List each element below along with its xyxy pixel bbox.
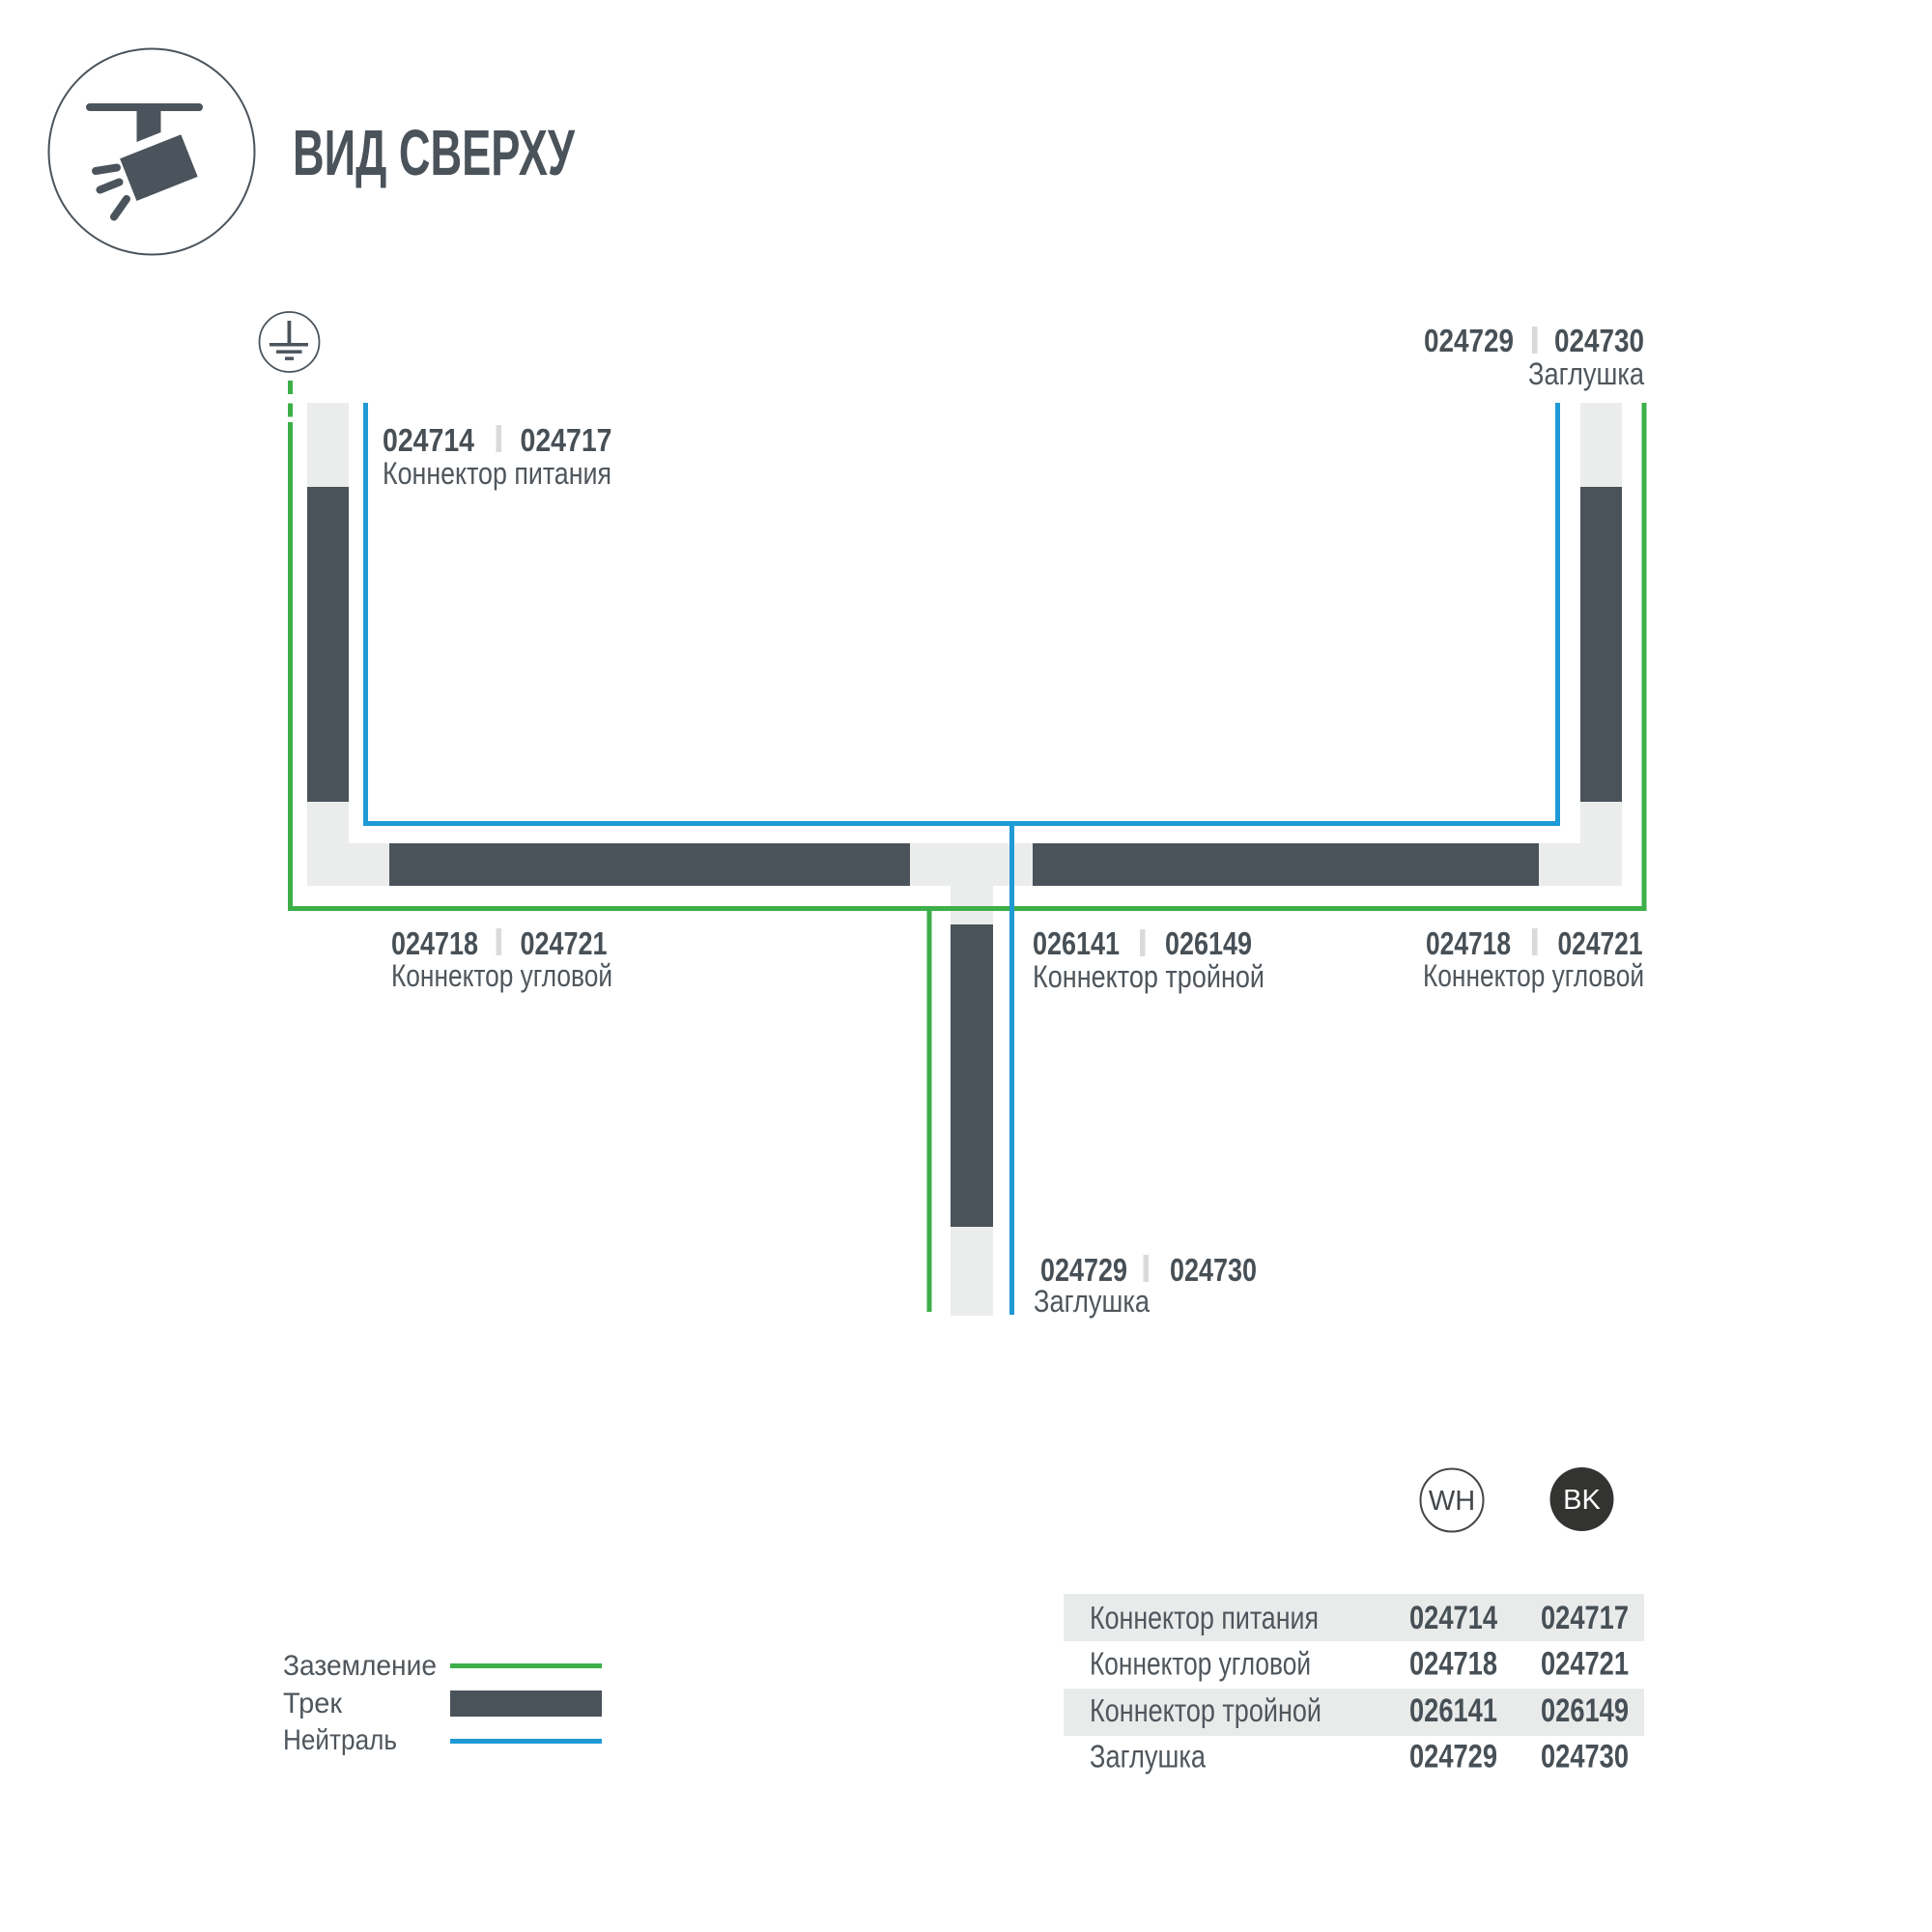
- svg-text:Заглушка: Заглушка: [1528, 356, 1644, 391]
- svg-text:Коннектор угловой: Коннектор угловой: [1090, 1646, 1311, 1682]
- svg-text:024730: 024730: [1541, 1739, 1629, 1776]
- svg-text:026141: 026141: [1033, 925, 1120, 961]
- svg-text:Коннектор тройной: Коннектор тройной: [1090, 1692, 1321, 1728]
- svg-text:BK: BK: [1563, 1485, 1601, 1516]
- svg-text:026149: 026149: [1165, 925, 1252, 961]
- svg-text:024729: 024729: [1424, 323, 1514, 358]
- svg-text:Коннектор угловой: Коннектор угловой: [391, 958, 612, 993]
- svg-text:Коннектор тройной: Коннектор тройной: [1033, 959, 1264, 994]
- svg-text:WH: WH: [1429, 1486, 1475, 1517]
- svg-text:024729: 024729: [1409, 1739, 1497, 1776]
- svg-text:026149: 026149: [1541, 1692, 1629, 1729]
- svg-text:024718: 024718: [1409, 1646, 1497, 1683]
- svg-text:024718: 024718: [1426, 925, 1511, 961]
- svg-text:Заземление: Заземление: [283, 1650, 437, 1682]
- svg-text:Заглушка: Заглушка: [1090, 1739, 1207, 1775]
- svg-text:024721: 024721: [1558, 925, 1643, 961]
- svg-text:Трек: Трек: [283, 1688, 343, 1719]
- svg-text:Нейтраль: Нейтраль: [283, 1724, 397, 1756]
- svg-text:024730: 024730: [1170, 1252, 1257, 1288]
- svg-text:024729: 024729: [1040, 1252, 1127, 1288]
- svg-text:024721: 024721: [1541, 1646, 1629, 1683]
- svg-text:Заглушка: Заглушка: [1034, 1284, 1150, 1319]
- svg-text:024714: 024714: [383, 422, 475, 458]
- svg-text:024717: 024717: [1541, 1600, 1629, 1636]
- svg-text:024718: 024718: [391, 925, 478, 961]
- svg-text:024714: 024714: [1409, 1600, 1497, 1636]
- svg-text:024721: 024721: [521, 925, 608, 961]
- svg-text:Коннектор угловой: Коннектор угловой: [1423, 958, 1644, 993]
- svg-text:024730: 024730: [1554, 323, 1644, 358]
- svg-text:Коннектор питания: Коннектор питания: [1090, 1600, 1319, 1635]
- svg-text:024717: 024717: [521, 422, 612, 458]
- svg-text:Коннектор питания: Коннектор питания: [383, 456, 611, 491]
- svg-text:ВИД СВЕРХУ: ВИД СВЕРХУ: [293, 117, 576, 189]
- svg-text:026141: 026141: [1409, 1692, 1497, 1729]
